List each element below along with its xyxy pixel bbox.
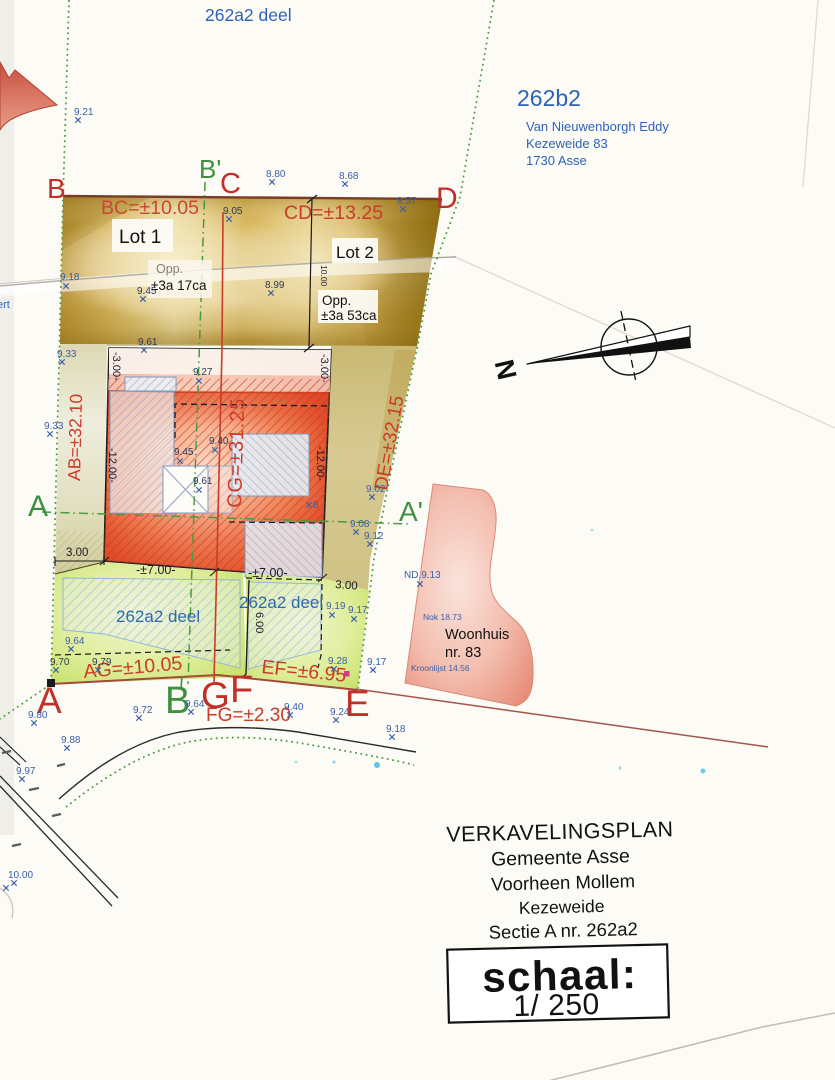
svg-text:9.80: 9.80 [28, 710, 48, 721]
svg-text:Woonhuis: Woonhuis [445, 627, 509, 643]
svg-text:262a2 deel: 262a2 deel [116, 607, 200, 626]
svg-text:8.57: 8.57 [397, 196, 417, 207]
svg-text:-3.00-: -3.00- [110, 352, 122, 381]
svg-text:9.12: 9.12 [364, 531, 384, 542]
svg-text:Voorheen Mollem: Voorheen Mollem [491, 870, 635, 895]
svg-text:Nok 18.73: Nok 18.73 [423, 612, 462, 622]
svg-text:9.05: 9.05 [223, 206, 243, 217]
svg-text:Lot 2: Lot 2 [336, 243, 374, 262]
svg-text:9.18: 9.18 [60, 272, 80, 283]
svg-text:9.45: 9.45 [174, 447, 194, 458]
svg-text:9.17: 9.17 [367, 657, 387, 668]
svg-text:9.40: 9.40 [209, 436, 229, 447]
svg-text:ND.9.13: ND.9.13 [404, 570, 441, 581]
svg-text:9.08: 9.08 [350, 519, 370, 530]
svg-text:Van Nieuwenborgh Eddy: Van Nieuwenborgh Eddy [526, 119, 669, 134]
svg-text:10.00: 10.00 [8, 870, 33, 881]
svg-text:-±7.00-: -±7.00- [136, 563, 176, 577]
svg-text:1730 Asse: 1730 Asse [526, 153, 587, 168]
svg-text:9.61: 9.61 [193, 476, 213, 487]
svg-text:9.33: 9.33 [44, 421, 64, 432]
svg-text:A': A' [399, 496, 423, 527]
svg-text:Gemeente Asse: Gemeente Asse [491, 845, 630, 870]
svg-text:8.99: 8.99 [265, 280, 285, 291]
svg-text:F: F [230, 669, 253, 711]
svg-text:3.00: 3.00 [66, 547, 88, 559]
svg-text:9.18: 9.18 [386, 724, 406, 735]
svg-text:B': B' [199, 154, 221, 184]
svg-text:262a2 deel: 262a2 deel [205, 5, 292, 25]
svg-text:B: B [47, 173, 66, 204]
svg-text:9.24: 9.24 [330, 707, 350, 718]
svg-text:nr. 83: nr. 83 [445, 645, 481, 661]
svg-text:9.33: 9.33 [57, 349, 77, 360]
svg-text:262b2: 262b2 [517, 85, 581, 111]
svg-text:9.88: 9.88 [61, 735, 81, 746]
svg-text:ert: ert [0, 299, 10, 311]
svg-text:9.72: 9.72 [133, 705, 153, 716]
svg-text:9.64: 9.64 [65, 636, 85, 647]
svg-text:9.64: 9.64 [185, 699, 205, 710]
svg-text:A: A [28, 490, 48, 523]
svg-text:10.00: 10.00 [319, 265, 329, 287]
svg-text:-12.00-: -12.00- [314, 446, 326, 481]
svg-text:-3.00-: -3.00- [318, 354, 330, 383]
svg-text:262a2 deel: 262a2 deel [239, 593, 323, 612]
svg-text:9.27: 9.27 [193, 367, 213, 378]
svg-text:1/ 250: 1/ 250 [513, 988, 600, 1023]
svg-text:±3a 17ca: ±3a 17ca [151, 278, 207, 293]
svg-text:-12.00-: -12.00- [106, 448, 118, 483]
svg-text:9.17: 9.17 [348, 605, 368, 616]
svg-text:±3a 53ca: ±3a 53ca [321, 308, 377, 323]
svg-text:9.28: 9.28 [328, 656, 348, 667]
svg-text:9.79: 9.79 [92, 657, 112, 668]
svg-text:9.21: 9.21 [74, 107, 94, 118]
svg-text:Kezeweide: Kezeweide [519, 896, 605, 918]
svg-text:9.61: 9.61 [138, 337, 158, 348]
svg-text:6.00: 6.00 [253, 612, 265, 633]
svg-text:9.40: 9.40 [284, 702, 304, 713]
svg-text:CG=±31.25: CG=±31.25 [224, 398, 249, 509]
svg-text:C: C [220, 168, 241, 200]
svg-text:Opp.: Opp. [156, 262, 183, 276]
svg-text:-±7.00-: -±7.00- [248, 566, 288, 580]
svg-text:9.70: 9.70 [50, 657, 70, 668]
svg-text:CD=±13.25: CD=±13.25 [284, 202, 383, 224]
svg-text:Sectie A nr. 262a2: Sectie A nr. 262a2 [488, 918, 638, 943]
svg-text:8.68: 8.68 [339, 171, 359, 182]
svg-text:Kezeweide 83: Kezeweide 83 [526, 136, 608, 151]
svg-text:AB=±32.10: AB=±32.10 [64, 393, 86, 481]
svg-text:Kroonlijst 14.56: Kroonlijst 14.56 [411, 663, 470, 673]
svg-text:9.97: 9.97 [16, 766, 36, 777]
svg-text:BC=±10.05: BC=±10.05 [101, 197, 199, 219]
svg-text:3.00: 3.00 [335, 579, 358, 593]
svg-text:8.80: 8.80 [266, 169, 286, 180]
svg-text:G: G [201, 675, 230, 716]
svg-text:9.19: 9.19 [326, 601, 346, 612]
svg-text:Lot 1: Lot 1 [119, 227, 161, 248]
svg-text:9.45: 9.45 [137, 286, 157, 297]
svg-text:Opp.: Opp. [322, 293, 351, 308]
svg-text:8: 8 [313, 500, 319, 511]
svg-text:D: D [436, 182, 458, 215]
svg-text:9.02: 9.02 [366, 484, 386, 495]
